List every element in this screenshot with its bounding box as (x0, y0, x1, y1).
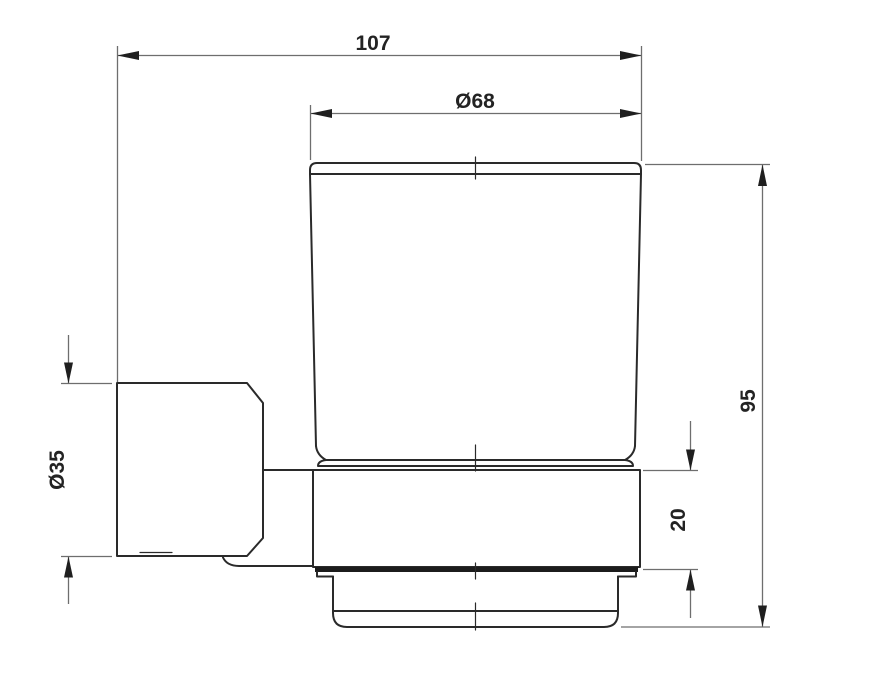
dimension-ring-height: 20 (643, 421, 698, 618)
bracket-body (117, 383, 263, 556)
ring-left-lip-step (317, 572, 333, 577)
dimension-cup-diameter: Ø68 (311, 90, 642, 160)
ring-band (313, 470, 640, 567)
technical-drawing-page: 107 Ø68 95 20 (0, 0, 874, 691)
dimension-bracket-diameter: Ø35 (46, 335, 112, 604)
dim68-label: Ø68 (455, 90, 495, 113)
dim95-arrow-top (758, 165, 767, 187)
cup-left-wall (310, 174, 316, 446)
wall-bracket-outline (117, 383, 263, 556)
dimension-overall-height: 95 (621, 165, 770, 628)
dim95-label: 95 (737, 389, 760, 413)
dimension-overall-width: 107 (118, 32, 642, 382)
cup-right-wall (635, 174, 641, 446)
dim35-label: Ø35 (46, 450, 69, 490)
dim107-arrow-right (620, 51, 642, 60)
dim107-label: 107 (355, 32, 390, 55)
tumbler-holder-drawing: 107 Ø68 95 20 (0, 0, 874, 691)
dim20-label: 20 (667, 508, 690, 531)
holder-ring-outline (313, 470, 640, 577)
dim95-arrow-bottom (758, 606, 767, 628)
dim20-arrow-up (686, 570, 695, 591)
dim68-arrow-left (311, 109, 333, 118)
dim68-arrow-right (620, 109, 642, 118)
dim35-arrow-down (64, 363, 73, 384)
glass-cup-outline (310, 163, 641, 466)
support-arm-outline (223, 470, 313, 566)
ring-right-lip-step (618, 572, 636, 577)
dim35-arrow-up (64, 557, 73, 578)
dim20-arrow-down (686, 450, 695, 471)
dim107-arrow-left (118, 51, 140, 60)
arm-bottom-edge (223, 558, 313, 567)
